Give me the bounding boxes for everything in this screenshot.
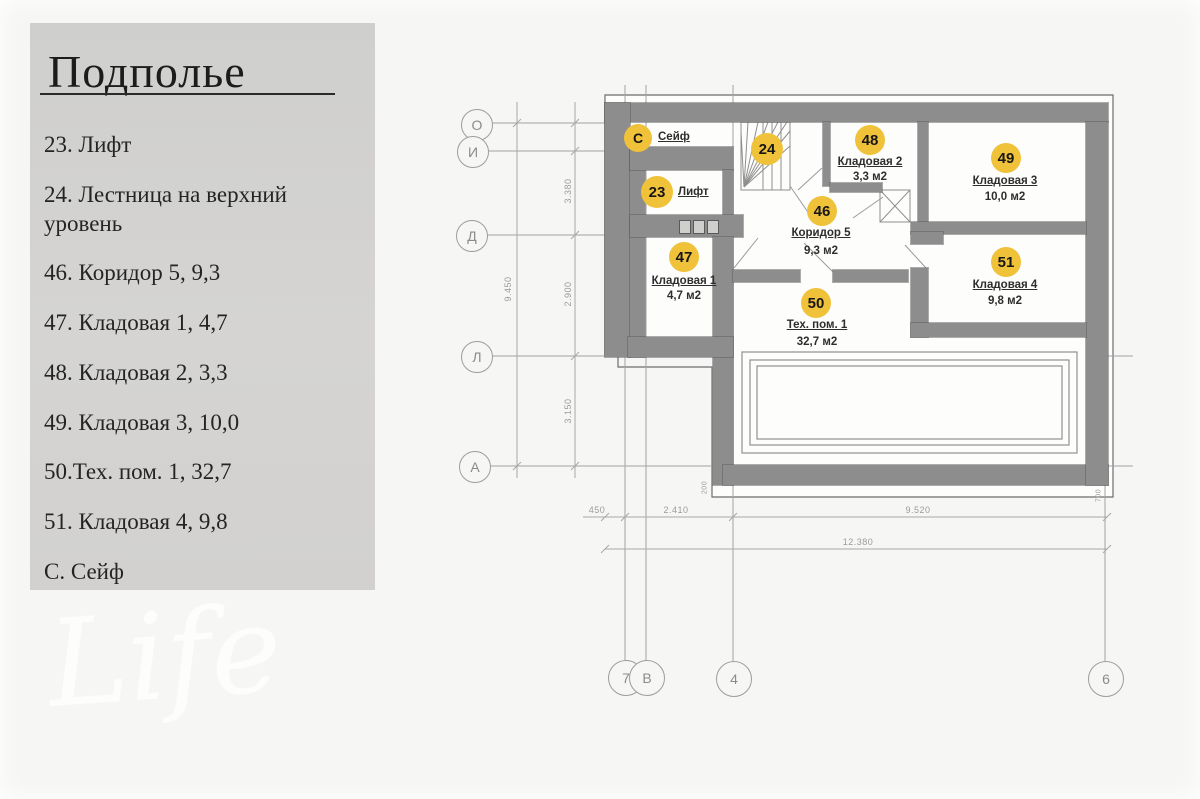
dim-segment-bottom: 3.150 — [563, 389, 573, 433]
wall-corridor-tech-b — [833, 270, 908, 282]
dim-2410: 2.410 — [654, 505, 698, 515]
room-area-k2: 3,3 м2 — [810, 170, 930, 184]
badge-k1: 47 — [669, 242, 699, 272]
badge-k4: 51 — [991, 247, 1021, 277]
vent-grille — [693, 220, 705, 234]
wall-right — [1086, 122, 1108, 485]
dim-segment-middle: 2.900 — [563, 272, 573, 316]
badge-safe: С — [624, 124, 652, 152]
room-area-tech: 32,7 м2 — [757, 335, 877, 349]
dim-450: 450 — [575, 505, 619, 515]
room-label-k4: Кладовая 4 — [945, 278, 1065, 292]
room-area-k1: 4,7 м2 — [624, 289, 744, 303]
dim-9520: 9.520 — [896, 505, 940, 515]
axis-left-I: И — [457, 136, 489, 168]
wall-under-k1 — [628, 337, 733, 357]
page: Подполье 23. Лифт 24. Лестница на верхни… — [0, 0, 1200, 799]
badge-tech: 50 — [801, 288, 831, 318]
room-area-corridor: 9,3 м2 — [761, 244, 881, 258]
wall-step — [911, 232, 943, 244]
room-label-k3: Кладовая 3 — [945, 174, 1065, 188]
dim-segment-top: 3.380 — [563, 169, 573, 213]
room-label-k2: Кладовая 2 — [810, 155, 930, 169]
shaft-cross-box — [880, 190, 910, 222]
technical-pit — [742, 352, 1077, 453]
badge-k2: 48 — [855, 125, 885, 155]
axis-bottom-V: В — [629, 660, 665, 696]
room-label-safe: Сейф — [658, 130, 690, 144]
room-label-k1: Кладовая 1 — [624, 274, 744, 288]
badge-stair: 24 — [751, 133, 783, 165]
room-area-k3: 10,0 м2 — [945, 190, 1065, 204]
badge-corridor: 46 — [807, 196, 837, 226]
vent-grille — [679, 220, 691, 234]
room-label-tech: Тех. пом. 1 — [757, 318, 877, 332]
room-area-k4: 9,8 м2 — [945, 294, 1065, 308]
wall-bottom — [723, 465, 1108, 485]
wall-under-safe — [630, 147, 733, 170]
wall-lift-right — [723, 170, 733, 217]
axis-bottom-4: 4 — [716, 661, 752, 697]
room-label-corridor: Коридор 5 — [761, 226, 881, 240]
dim-lines-bottom — [583, 513, 1111, 553]
room-label-lift: Лифт — [678, 185, 709, 199]
dim-total-width: 12.380 — [836, 537, 880, 547]
dim-200: 200 — [702, 476, 709, 500]
axis-left-L: Л — [461, 341, 493, 373]
axis-left-A: А — [459, 451, 491, 483]
vent-grille — [707, 220, 719, 234]
badge-lift: 23 — [641, 176, 673, 208]
badge-k3: 49 — [991, 143, 1021, 173]
wall-under-k2 — [830, 183, 882, 192]
axis-bottom-6: 6 — [1088, 661, 1124, 697]
axis-left-D: Д — [456, 220, 488, 252]
wall-under-k4 — [911, 323, 1086, 337]
wall-top — [605, 103, 1108, 122]
dim-700: 700 — [1096, 484, 1103, 508]
dim-total-height: 9.450 — [503, 267, 513, 311]
wall-left-inner — [630, 147, 645, 357]
